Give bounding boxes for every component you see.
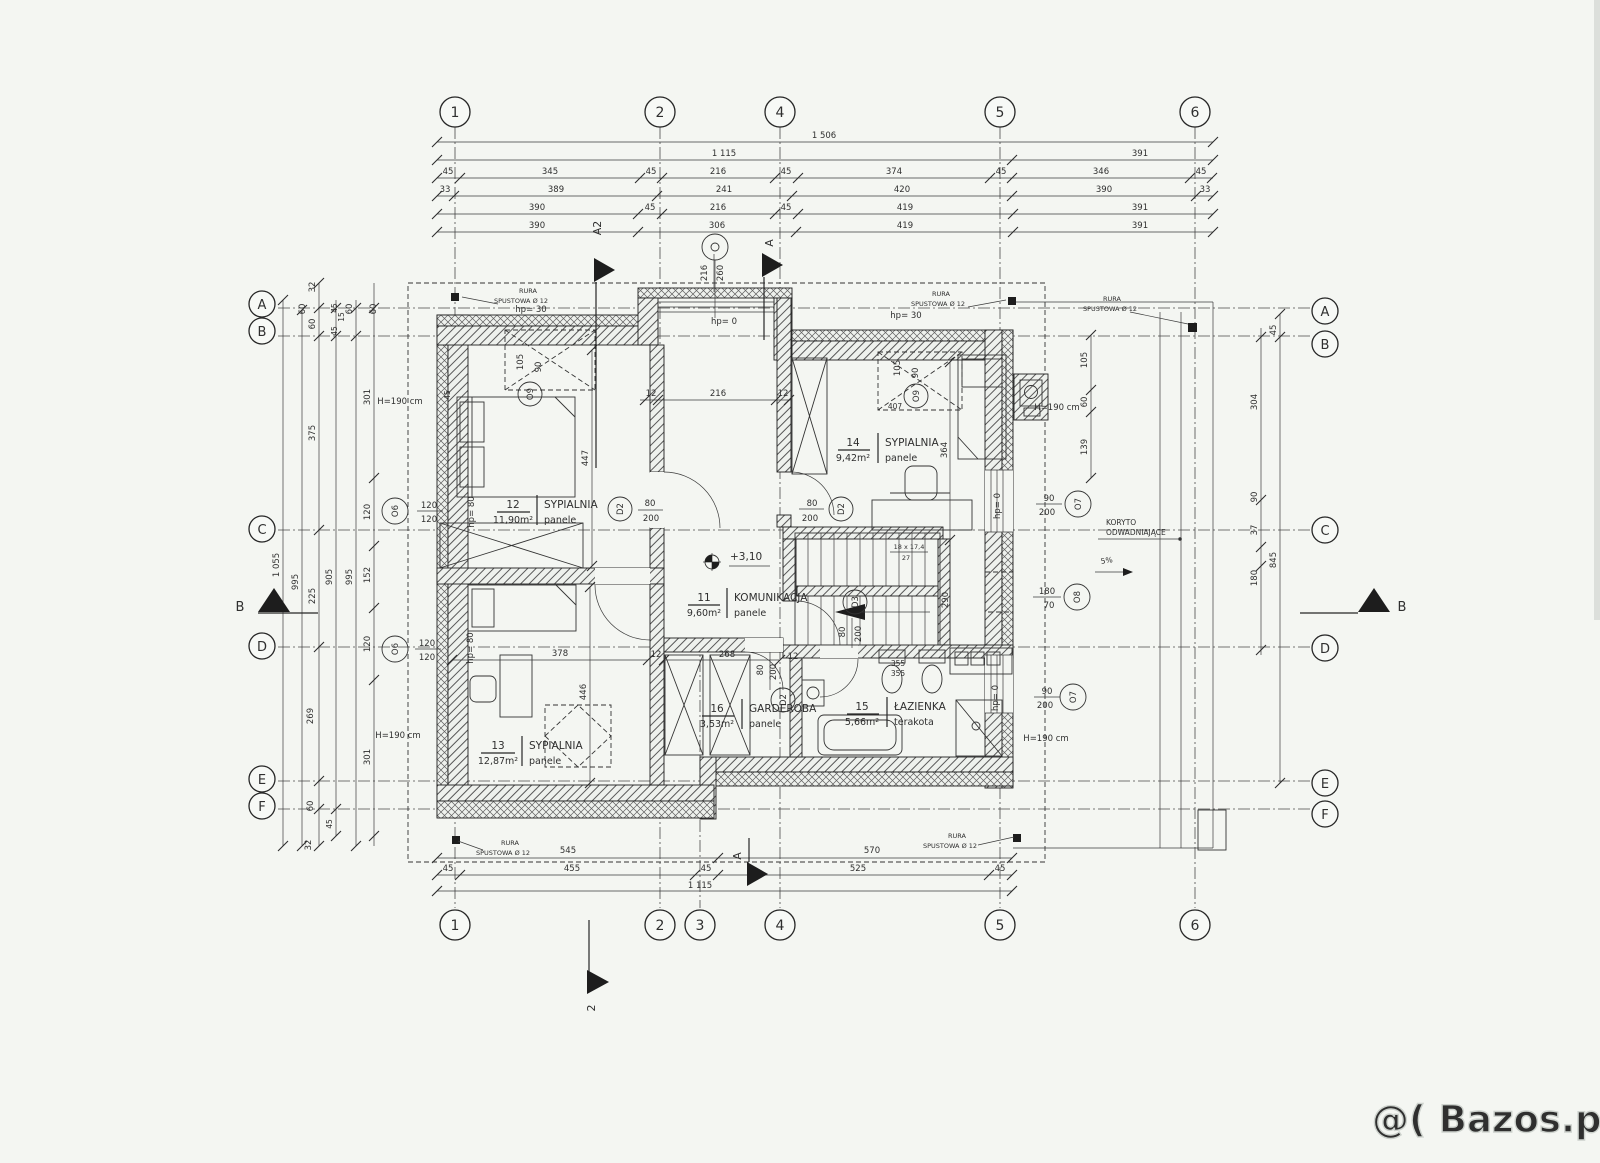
room-floor: panele [734, 608, 766, 619]
dim-label: 390 [529, 203, 545, 213]
grid-bubble-row: E [249, 766, 275, 792]
grid-label: D [1320, 642, 1330, 657]
dim-label: 12 [651, 650, 662, 660]
grid-bubble-col: 5 [985, 910, 1015, 940]
tag-label: O8 [1073, 591, 1083, 603]
section-marker-2-bottom: 2 [585, 920, 609, 1012]
dim-label: 45 [645, 203, 656, 213]
dim-label: 180 [1250, 570, 1260, 586]
downpipe-icon [1008, 297, 1016, 305]
dim-label: 45 [996, 167, 1007, 177]
room-name: KOMUNIKACJA [734, 592, 808, 604]
tag-dim: 260 [716, 265, 726, 281]
tag-dim: 90 [1044, 494, 1055, 504]
grid-label: B [1321, 338, 1330, 353]
svg-text:RURA: RURA [948, 832, 967, 840]
tag-dim: 407 [888, 402, 903, 411]
room-area: 9,42m² [836, 453, 870, 464]
room-label-12: 12 SYPIALNIA 11,90m² panele [493, 495, 599, 526]
tag-dim: 90 [1042, 687, 1053, 697]
downpipe-icon [452, 836, 460, 844]
dim-label: 391 [1132, 221, 1148, 231]
floor-plan-drawing: 1 2 4 5 6 1 2 3 4 5 6 A B C D E F A B C … [0, 0, 1600, 1163]
desk-room13 [470, 655, 532, 717]
grid-label: 6 [1191, 918, 1200, 934]
dim-label: 1 506 [812, 131, 836, 141]
grid-bubble-row: C [1312, 517, 1338, 543]
dimension-chains-left: 32 60 60 45 15 45 60 60 375 301 120 1 05… [272, 278, 379, 851]
dim-label: 45 [443, 864, 454, 874]
door-tag-d2: D2 [608, 497, 632, 521]
grid-bubble-col: 6 [1180, 97, 1210, 127]
dim-label: 389 [548, 185, 564, 195]
dim-label: 45 [443, 390, 452, 400]
grid-label: F [258, 800, 265, 815]
tag-dim: 90 [911, 368, 921, 379]
svg-text:A: A [763, 239, 776, 247]
section-marker-b-left: B [236, 588, 318, 615]
drainage-note: KORYTOODWADNIAJĄCE [1098, 518, 1182, 541]
dim-label: 346 [1093, 167, 1109, 177]
downpipe-icon [1188, 323, 1197, 332]
tag-dim: 180 [1039, 587, 1055, 597]
tag-dim: 200 [854, 626, 864, 642]
dim-label: 216 [710, 389, 726, 399]
room-label-11: 11 KOMUNIKACJA 9,60m² panele [687, 588, 808, 619]
dim-label: 905 [325, 569, 335, 585]
terrace-pillar [1198, 810, 1226, 850]
dim-label: 364 [940, 442, 950, 458]
parapet-note: hp= 0 [991, 685, 1001, 711]
height-note: H=190 cm [1023, 734, 1068, 744]
svg-text:5%: 5% [1100, 555, 1113, 566]
tag-dim: 105 [516, 354, 526, 370]
window-tag-o7: O7 [1065, 491, 1091, 517]
svg-text:A: A [731, 852, 744, 860]
dim-label: 269 [306, 708, 316, 724]
tag-dim: 70 [1044, 601, 1055, 611]
room-number: 12 [506, 499, 519, 511]
dim-label: 375 [308, 425, 318, 441]
window-tag-o8: O8 [1064, 584, 1090, 610]
parapet-note: hp= 80 [467, 496, 477, 527]
grid-bubble-col: 4 [765, 97, 795, 127]
downpipe-icon [1013, 834, 1021, 842]
room-floor: panele [529, 756, 561, 767]
room-name: SYPIALNIA [544, 499, 598, 511]
grid-label: 4 [776, 918, 785, 934]
svg-text:RURA: RURA [932, 290, 951, 298]
door-swing-arc [595, 585, 650, 640]
dim-label: 120 [363, 636, 373, 652]
tag-dim: 80 [645, 499, 656, 509]
dim-label: 306 [709, 221, 725, 231]
svg-text:SPUSTOWA Ø 12: SPUSTOWA Ø 12 [476, 849, 530, 857]
height-note: H=190 cm [375, 731, 420, 741]
room-number: 14 [846, 437, 860, 449]
dim-label: 45 [330, 303, 339, 313]
dim-label: 216 [710, 167, 726, 177]
room-area: 3,53m² [700, 719, 734, 730]
tag-dim: 200 [1037, 701, 1053, 711]
dim-label: 45 [325, 819, 334, 829]
svg-text:SPUSTOWA Ø 12: SPUSTOWA Ø 12 [911, 300, 965, 308]
svg-text:ODWADNIAJĄCE: ODWADNIAJĄCE [1106, 528, 1166, 537]
grid-label: B [258, 325, 267, 340]
dim-label: 1 115 [712, 149, 736, 159]
wardrobe-garderoba [665, 655, 703, 755]
grid-bubble-col: 3 [685, 910, 715, 940]
grid-label: 1 [451, 918, 460, 934]
dim-label: 447 [581, 450, 591, 466]
grid-label: 1 [451, 105, 460, 121]
watermark: @( Bazos.pl [1372, 1098, 1600, 1141]
dim-label: 268 [719, 650, 735, 660]
downpipe-note: RURASPUSTOWA Ø 12 [911, 290, 1006, 308]
grid-label: D [257, 640, 267, 655]
tag-dim: 120 [421, 501, 437, 511]
scanned-floor-plan-page: 1 2 4 5 6 1 2 3 4 5 6 A B C D E F A B C … [0, 0, 1600, 1163]
dim-label: 995 [345, 569, 355, 585]
tag-dim: 90 [534, 362, 544, 373]
tag-dim: 120 [419, 639, 435, 649]
downpipe-note: RURASPUSTOWA Ø 12 [458, 839, 530, 857]
dim-label: 290 [941, 592, 951, 608]
dim-label: 390 [529, 221, 545, 231]
dim-label: 152 [363, 567, 373, 583]
dim-label: 374 [886, 167, 902, 177]
tag-label: O9 [526, 388, 536, 400]
dim-label: 391 [1132, 149, 1148, 159]
svg-text:2: 2 [585, 1005, 598, 1012]
grid-label: 5 [996, 918, 1005, 934]
grid-label: F [1321, 808, 1328, 823]
dim-label: 45 [995, 864, 1006, 874]
level-mark: +3,10 [703, 551, 770, 571]
grid-bubble-row: C [249, 516, 275, 542]
grid-label: C [1320, 524, 1329, 539]
room-label-15: 15 ŁAZIENKA 5,66m² terakota [845, 697, 947, 728]
tag-dim: 80 [807, 499, 818, 509]
tag-label: O7 [1069, 691, 1079, 703]
door-swing-arc [664, 472, 720, 528]
bed-room13 [468, 585, 576, 631]
room-floor: panele [749, 719, 781, 730]
dim-label: 12 [788, 652, 799, 662]
door-swing-arc [796, 601, 840, 645]
tag-dim: 80 [756, 665, 766, 676]
room-number: 11 [697, 592, 710, 604]
tag-label: D2 [837, 503, 847, 515]
grid-label: E [258, 773, 266, 788]
dim-label: 12 [778, 389, 789, 399]
dim-label: 33 [1200, 185, 1211, 195]
slope-note: 5% [1095, 555, 1133, 576]
chimney-block [1014, 374, 1048, 420]
dim-label: 45 [330, 326, 339, 336]
dim-label: 446 [579, 684, 589, 700]
grid-bubble-col: 1 [440, 910, 470, 940]
tag-label: O7 [1074, 498, 1084, 510]
grid-bubble-col: 1 [440, 97, 470, 127]
grid-bubble-row: F [1312, 801, 1338, 827]
dim-label: 845 [1269, 552, 1279, 568]
dim-label: 45 [701, 864, 712, 874]
scan-edge-artifact [1594, 0, 1600, 620]
dim-label: 120 [363, 504, 373, 520]
svg-text:B: B [236, 600, 245, 615]
dim-label: 419 [897, 203, 913, 213]
stair-note: 18 x 17,4 [894, 543, 925, 551]
tag-label: D2 [616, 503, 626, 515]
window-tag-o9: O9 [904, 384, 928, 408]
dim-label: 90 [1250, 492, 1260, 503]
room-name: SYPIALNIA [529, 740, 583, 752]
dim-label: 1 115 [688, 881, 712, 891]
svg-text:SPUSTOWA Ø 12: SPUSTOWA Ø 12 [1083, 305, 1137, 313]
window-tag-o9: O9 [518, 382, 542, 406]
grid-bubble-row: B [1312, 331, 1338, 357]
grid-bubble-col: 2 [645, 97, 675, 127]
room-number: 15 [855, 701, 868, 713]
dim-label: 139 [1080, 439, 1090, 455]
dim-label: 1 055 [272, 553, 282, 577]
dim-label: 420 [894, 185, 910, 195]
stair-note: 27 [902, 554, 910, 562]
desk-room14 [872, 466, 972, 530]
dim-label: 45 [443, 167, 454, 177]
room-label-13: 13 SYPIALNIA 12,87m² panele [478, 736, 584, 767]
dim-label: 225 [308, 588, 318, 604]
dim-label: 60 [369, 304, 379, 315]
dim-label: 37 [1250, 525, 1260, 536]
height-note: H=190 cm [377, 397, 422, 407]
dim-label: 419 [897, 221, 913, 231]
tag-dim: 120 [419, 653, 435, 663]
svg-text:SPUSTOWA Ø 12: SPUSTOWA Ø 12 [923, 842, 977, 850]
parapet-note: hp= 80 [466, 632, 476, 663]
svg-text:SPUSTOWA Ø 12: SPUSTOWA Ø 12 [494, 297, 548, 305]
tag-dim: 80 [838, 627, 848, 638]
grid-bubble-col: 4 [765, 910, 795, 940]
tag-dim: 200 [769, 664, 779, 680]
window-tag-o6: O6 [382, 498, 408, 524]
height-note: H=190 cm [1034, 403, 1079, 413]
dim-label: 545 [560, 846, 576, 856]
dim-label: 60 [298, 304, 308, 315]
room-label-14: 14 SYPIALNIA 9,42m² panele [836, 433, 940, 464]
downpipe-note: RURASPUSTOWA Ø 12 [462, 287, 548, 305]
room-labels: 12 SYPIALNIA 11,90m² panele 14 SYPIALNIA… [478, 433, 947, 767]
dim-label: 216 [710, 203, 726, 213]
svg-text:RURA: RURA [501, 839, 520, 847]
dim-label: 33 [440, 185, 451, 195]
room-floor: panele [885, 453, 917, 464]
grid-bubble-col: 2 [645, 910, 675, 940]
dim-label: 570 [864, 846, 880, 856]
downpipe-note: RURASPUSTOWA Ø 12 [1083, 295, 1188, 324]
window-tag-o6: O6 [382, 636, 408, 662]
dim-label: 60 [345, 304, 355, 315]
dim-label: 301 [363, 749, 373, 765]
section-marker-b-right: B [1300, 588, 1406, 615]
parapet-note: hp= 0 [711, 317, 737, 327]
grid-label: 2 [656, 918, 665, 934]
room-floor: panele [544, 515, 576, 526]
dim-label: 455 [564, 864, 580, 874]
grid-bubble-row: D [1312, 635, 1338, 661]
dim-label: 391 [1132, 203, 1148, 213]
parapet-note: hp= 30 [515, 305, 546, 315]
tag-dim: 200 [802, 514, 818, 524]
grid-label: 6 [1191, 105, 1200, 121]
tag-dim: 105 [893, 360, 903, 376]
window-tag-o7: O7 [1060, 684, 1086, 710]
room-name: SYPIALNIA [885, 437, 939, 449]
dim-label: 12 [646, 389, 657, 399]
svg-text:RURA: RURA [1103, 295, 1122, 303]
svg-text:RURA: RURA [519, 287, 538, 295]
dimension-rows-top: 1 506 1 115 391 45 345 45 216 45 374 45 … [432, 131, 1218, 237]
tag-dim: 200 [643, 514, 659, 524]
dim-label: 355 [891, 659, 906, 668]
dim-label: 105 [1080, 352, 1090, 368]
svg-text:A2: A2 [591, 221, 604, 236]
dormer-window [658, 302, 774, 312]
dim-label: 60 [308, 319, 318, 330]
grid-bubbles: 1 2 4 5 6 1 2 3 4 5 6 A B C D E F A B C … [249, 97, 1338, 940]
room-name: GARDEROBA [749, 703, 817, 715]
tag-label: O6 [391, 505, 401, 517]
room-name: ŁAZIENKA [893, 701, 947, 713]
grid-bubble-row: F [249, 793, 275, 819]
tag-dim: 200 [1039, 508, 1055, 518]
dim-label: 241 [716, 185, 732, 195]
grid-bubble-col: 5 [985, 97, 1015, 127]
dim-label: 45 [781, 203, 792, 213]
grid-bubble-row: B [249, 318, 275, 344]
grid-bubble-row: D [249, 633, 275, 659]
dim-label: 378 [552, 649, 568, 659]
grid-bubble-row: A [1312, 298, 1338, 324]
grid-label: E [1321, 777, 1329, 792]
dimension-chains-right: 45 304 90 37 845 180 105 60 139 [1080, 309, 1285, 788]
grid-label: C [257, 523, 266, 538]
dim-label: 32 [308, 282, 318, 293]
grid-label: 2 [656, 105, 665, 121]
dim-label: 390 [1096, 185, 1112, 195]
dim-label: 345 [542, 167, 558, 177]
grid-label: 5 [996, 105, 1005, 121]
svg-text:KORYTO: KORYTO [1106, 518, 1136, 527]
dim-label: 45 [646, 167, 657, 177]
downpipe-icon [451, 293, 459, 301]
dim-label: 45 [781, 167, 792, 177]
dim-label: 355 [891, 669, 906, 678]
furniture [440, 355, 1006, 755]
dim-label: 60 [1080, 397, 1090, 408]
grid-label: 4 [776, 105, 785, 121]
bed-room12 [457, 397, 575, 497]
dim-label: 32 [304, 840, 314, 851]
dim-label: 995 [291, 574, 301, 590]
svg-text:B: B [1398, 600, 1407, 615]
wardrobe-room14 [792, 358, 827, 474]
dim-label: 45 [1269, 325, 1279, 336]
dim-label: 304 [1250, 394, 1260, 410]
grid-bubble-col: 6 [1180, 910, 1210, 940]
room-number: 13 [491, 740, 504, 752]
dim-label: 60 [306, 801, 316, 812]
grid-label: A [258, 298, 267, 313]
room-area: 12,87m² [478, 756, 518, 767]
room-area: 11,90m² [493, 515, 533, 526]
level-value: +3,10 [730, 551, 762, 563]
room-area: 5,66m² [845, 717, 879, 728]
tag-dim: 216 [700, 265, 710, 281]
grid-label: 3 [696, 918, 705, 934]
dim-label: 525 [850, 864, 866, 874]
parapet-note: hp= 0 [993, 493, 1003, 519]
grid-bubble-row: E [1312, 770, 1338, 796]
stairs: 18 x 17,4 27 [795, 533, 940, 645]
tag-label: D3 [851, 596, 861, 608]
dim-label: 45 [1196, 167, 1207, 177]
dim-label: 301 [363, 389, 373, 405]
door-swing-arc [820, 659, 858, 697]
grid-bubble-row: A [249, 291, 275, 317]
room-number: 16 [710, 703, 724, 715]
door-tag-d2: D2 [829, 497, 853, 521]
grid-label: A [1321, 305, 1330, 320]
room-floor: terakota [894, 717, 934, 728]
tag-label: O9 [912, 390, 922, 402]
tag-dim: 120 [421, 515, 437, 525]
room-area: 9,60m² [687, 608, 721, 619]
parapet-note: hp= 30 [890, 311, 921, 321]
tag-label: O6 [391, 643, 401, 655]
